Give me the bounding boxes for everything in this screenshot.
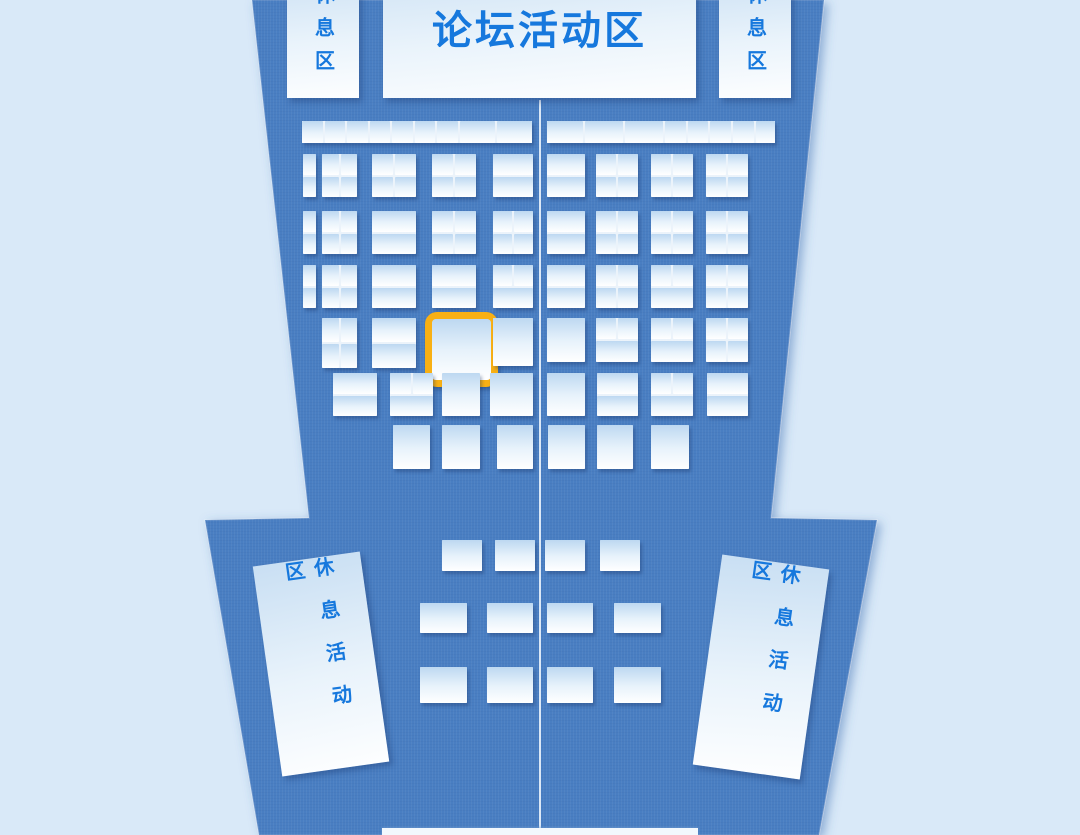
stall-strip	[547, 121, 775, 143]
booth-cluster	[547, 318, 585, 362]
booth[interactable]	[493, 288, 533, 309]
booth[interactable]	[614, 603, 661, 633]
booth[interactable]	[614, 667, 661, 703]
booth[interactable]	[673, 177, 693, 198]
booth[interactable]	[651, 211, 671, 232]
booth[interactable]	[303, 154, 316, 175]
booth[interactable]	[706, 318, 726, 339]
booth[interactable]	[341, 265, 358, 286]
booth-cluster	[372, 265, 416, 308]
booth[interactable]	[432, 154, 453, 175]
booth-cluster	[707, 373, 748, 416]
booth[interactable]	[710, 121, 731, 143]
booth[interactable]	[728, 265, 748, 286]
booth[interactable]	[728, 288, 748, 309]
booth[interactable]	[493, 177, 533, 198]
booth[interactable]	[432, 234, 453, 255]
booth[interactable]	[596, 177, 616, 198]
booth-cluster	[372, 154, 416, 197]
booth[interactable]	[596, 265, 616, 286]
booth[interactable]	[547, 373, 585, 416]
booth-cluster	[493, 211, 533, 254]
rest-area-panel-left: 休息区	[287, 0, 359, 98]
booth-cluster	[493, 154, 533, 197]
booth[interactable]	[547, 121, 583, 143]
booth[interactable]	[596, 318, 616, 339]
booth-cluster	[442, 425, 480, 469]
booth[interactable]	[596, 234, 616, 255]
booth-cluster	[322, 265, 357, 308]
booth[interactable]	[497, 425, 533, 469]
booth-cluster	[432, 154, 476, 197]
booth[interactable]	[651, 396, 693, 417]
booth[interactable]	[392, 121, 413, 143]
booth[interactable]	[322, 177, 339, 198]
booth-cluster	[333, 373, 377, 416]
booth[interactable]	[547, 154, 585, 175]
booth-cluster	[614, 603, 661, 633]
booth-cluster	[487, 667, 533, 703]
booth[interactable]	[706, 177, 726, 198]
booth[interactable]	[651, 154, 671, 175]
booth-cluster	[490, 373, 533, 416]
booth[interactable]	[325, 121, 346, 143]
booth[interactable]	[420, 667, 467, 703]
booth[interactable]	[651, 318, 671, 339]
booth[interactable]	[547, 234, 585, 255]
booth[interactable]	[707, 396, 748, 417]
booth[interactable]	[651, 234, 671, 255]
booth[interactable]	[370, 121, 391, 143]
booth[interactable]	[322, 234, 339, 255]
booth-cluster	[706, 318, 748, 362]
booth[interactable]	[442, 373, 480, 416]
booth[interactable]	[618, 288, 638, 309]
booth[interactable]	[322, 344, 339, 368]
booth[interactable]	[497, 121, 533, 143]
booth[interactable]	[495, 540, 535, 571]
booth[interactable]	[493, 234, 512, 255]
booth[interactable]	[415, 121, 436, 143]
booth[interactable]	[341, 288, 358, 309]
booth-cluster	[547, 373, 585, 416]
booth[interactable]	[706, 234, 726, 255]
booth[interactable]	[432, 288, 476, 309]
booth[interactable]	[733, 121, 754, 143]
booth[interactable]	[303, 288, 316, 309]
booth[interactable]	[322, 211, 339, 232]
booth[interactable]	[442, 425, 480, 469]
booth[interactable]	[728, 211, 748, 232]
booth-cluster	[303, 211, 316, 254]
booth-cluster	[597, 373, 638, 416]
booth[interactable]	[395, 177, 416, 198]
booth-cluster	[420, 667, 467, 703]
booth[interactable]	[390, 373, 411, 394]
booth[interactable]	[688, 121, 709, 143]
booth-cluster	[372, 211, 416, 254]
booth-cluster	[493, 318, 533, 366]
booth[interactable]	[341, 344, 358, 368]
booth-cluster	[706, 154, 748, 197]
booth-cluster	[547, 211, 585, 254]
booth[interactable]	[651, 341, 693, 362]
booth[interactable]	[706, 265, 726, 286]
booth[interactable]	[442, 540, 482, 571]
booth[interactable]	[514, 211, 533, 232]
booth[interactable]	[728, 234, 748, 255]
booth-cluster	[596, 154, 638, 197]
booth[interactable]	[322, 265, 339, 286]
expo-floorplan: 论坛活动区 休息区 休息区 休息活动区 休息活动区	[0, 0, 1080, 835]
booth[interactable]	[756, 121, 775, 143]
booth[interactable]	[455, 234, 476, 255]
booth[interactable]	[547, 211, 585, 232]
booth[interactable]	[728, 177, 748, 198]
booth[interactable]	[303, 265, 316, 286]
booth[interactable]	[547, 177, 585, 198]
booth-cluster	[497, 425, 533, 469]
booth[interactable]	[673, 318, 693, 339]
booth[interactable]	[372, 177, 393, 198]
booth[interactable]	[547, 265, 585, 286]
booth[interactable]	[596, 154, 616, 175]
booth-cluster	[706, 211, 748, 254]
booth-cluster	[596, 211, 638, 254]
booth-cluster	[495, 540, 535, 571]
booth-cluster	[600, 540, 640, 571]
booth-cluster	[322, 318, 357, 368]
booth[interactable]	[322, 154, 339, 175]
booth-cluster	[420, 603, 467, 633]
booth-cluster	[303, 265, 316, 308]
booth-cluster	[614, 667, 661, 703]
booth-cluster	[545, 540, 585, 571]
booth[interactable]	[372, 211, 416, 232]
booth[interactable]	[596, 288, 616, 309]
booth[interactable]	[618, 154, 638, 175]
booth[interactable]	[547, 603, 593, 633]
booth-cluster	[651, 318, 693, 362]
booth[interactable]	[432, 211, 453, 232]
center-aisle-line	[539, 100, 541, 828]
booth[interactable]	[651, 288, 693, 309]
booth[interactable]	[728, 318, 748, 339]
booth[interactable]	[673, 154, 693, 175]
booth[interactable]	[651, 373, 671, 394]
booth[interactable]	[706, 154, 726, 175]
booth[interactable]	[728, 154, 748, 175]
booth-cluster	[322, 154, 357, 197]
booth[interactable]	[673, 265, 693, 286]
booth[interactable]	[372, 318, 416, 342]
booth-cluster	[596, 318, 638, 362]
booth[interactable]	[341, 318, 358, 342]
booth-cluster	[372, 318, 416, 368]
booth[interactable]	[514, 265, 533, 286]
booth-cluster	[651, 154, 693, 197]
booth[interactable]	[728, 341, 748, 362]
booth[interactable]	[651, 265, 671, 286]
booth[interactable]	[651, 425, 689, 469]
booth[interactable]	[625, 121, 663, 143]
booth[interactable]	[545, 540, 585, 571]
booth[interactable]	[347, 121, 368, 143]
booth-cluster	[651, 425, 689, 469]
booth-cluster	[432, 211, 476, 254]
booth[interactable]	[548, 425, 585, 469]
booth[interactable]	[372, 288, 416, 309]
booth[interactable]	[372, 154, 393, 175]
booth-cluster	[432, 265, 476, 308]
booth[interactable]	[618, 318, 638, 339]
booth-cluster	[390, 373, 433, 416]
booth[interactable]	[597, 373, 638, 394]
booth[interactable]	[413, 373, 434, 394]
booth-cluster	[548, 425, 585, 469]
booth[interactable]	[673, 234, 693, 255]
booth[interactable]	[651, 177, 671, 198]
booth[interactable]	[514, 234, 533, 255]
booth[interactable]	[460, 121, 495, 143]
booth-cluster	[487, 603, 533, 633]
booth[interactable]	[322, 288, 339, 309]
booth[interactable]	[596, 341, 638, 362]
booth-cluster	[651, 211, 693, 254]
booth[interactable]	[490, 373, 533, 416]
booth[interactable]	[372, 234, 416, 255]
booth[interactable]	[618, 265, 638, 286]
rest-activity-area-label-right: 休息活动区	[718, 558, 805, 776]
rest-area-label-right: 休息区	[741, 0, 770, 83]
booth[interactable]	[585, 121, 623, 143]
booth-cluster	[547, 265, 585, 308]
booth-cluster	[303, 154, 316, 197]
booth[interactable]	[341, 154, 358, 175]
booth[interactable]	[618, 177, 638, 198]
booth-cluster	[547, 603, 593, 633]
booth-cluster	[442, 540, 482, 571]
booth[interactable]	[372, 265, 416, 286]
booth[interactable]	[618, 211, 638, 232]
booth[interactable]	[372, 344, 416, 368]
forum-activity-area-label: 论坛活动区	[432, 0, 647, 56]
booth-cluster	[547, 667, 593, 703]
booth-cluster	[322, 211, 357, 254]
booth[interactable]	[493, 211, 512, 232]
booth[interactable]	[333, 373, 377, 394]
booth[interactable]	[341, 211, 358, 232]
booth[interactable]	[341, 177, 358, 198]
booth[interactable]	[420, 603, 467, 633]
booth[interactable]	[493, 154, 533, 175]
booth[interactable]	[547, 667, 593, 703]
booth[interactable]	[487, 603, 533, 633]
rest-activity-area-label-left: 休息活动区	[278, 555, 365, 773]
booth-cluster	[547, 154, 585, 197]
booth[interactable]	[455, 154, 476, 175]
booth-cluster	[651, 373, 693, 416]
booth[interactable]	[706, 341, 726, 362]
booth[interactable]	[395, 154, 416, 175]
booth[interactable]	[455, 211, 476, 232]
booth[interactable]	[390, 396, 433, 417]
rest-area-panel-right: 休息区	[719, 0, 791, 98]
booth[interactable]	[333, 396, 377, 417]
booth-cluster	[596, 265, 638, 308]
booth-cluster	[442, 373, 480, 416]
booth[interactable]	[665, 121, 686, 143]
booth[interactable]	[393, 425, 430, 469]
booth[interactable]	[322, 318, 339, 342]
rest-area-label-left: 休息区	[309, 0, 338, 83]
booth[interactable]	[487, 667, 533, 703]
booth[interactable]	[673, 211, 693, 232]
booth[interactable]	[707, 373, 748, 394]
selected-booth[interactable]	[432, 319, 491, 380]
booth[interactable]	[597, 425, 633, 469]
stall-strip	[302, 121, 532, 143]
booth-cluster	[597, 425, 633, 469]
booth[interactable]	[303, 177, 316, 198]
booth[interactable]	[302, 121, 323, 143]
booth[interactable]	[341, 234, 358, 255]
booth[interactable]	[493, 318, 533, 366]
booth[interactable]	[303, 234, 316, 255]
booth[interactable]	[673, 373, 693, 394]
booth[interactable]	[547, 318, 585, 362]
booth-cluster	[393, 425, 430, 469]
booth[interactable]	[432, 177, 453, 198]
booth[interactable]	[618, 234, 638, 255]
forum-activity-area-panel: 论坛活动区	[383, 0, 696, 98]
entrance-strip	[382, 828, 698, 835]
booth-cluster	[493, 265, 533, 308]
booth[interactable]	[303, 211, 316, 232]
booth[interactable]	[437, 121, 458, 143]
booth[interactable]	[596, 211, 616, 232]
booth-cluster	[651, 265, 693, 308]
booth[interactable]	[597, 396, 638, 417]
booth[interactable]	[455, 177, 476, 198]
booth[interactable]	[493, 265, 512, 286]
booth[interactable]	[706, 211, 726, 232]
booth[interactable]	[432, 265, 476, 286]
booth-cluster	[706, 265, 748, 308]
booth[interactable]	[600, 540, 640, 571]
booth[interactable]	[706, 288, 726, 309]
booth[interactable]	[547, 288, 585, 309]
